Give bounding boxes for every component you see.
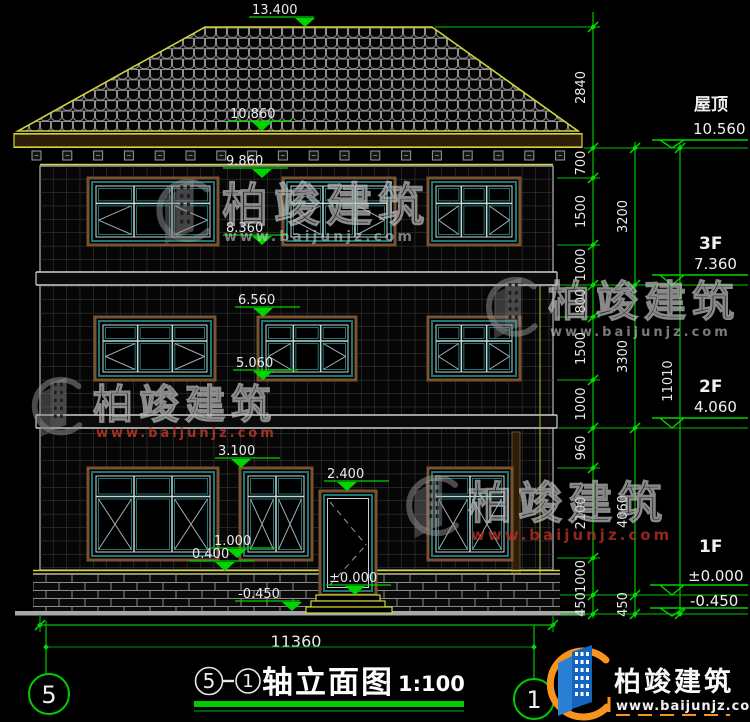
dim-value: 1500 [574,195,589,228]
ground-line [15,611,585,616]
elevation-value: 3.100 [218,444,255,459]
brand-name: 柏竣建筑 [614,666,734,698]
watermark-brand: 柏竣建筑 [548,277,740,326]
dim-value: 3200 [616,200,631,233]
title-scale: 1:100 [398,672,465,696]
f2-label: 2F [699,377,722,397]
f1-zero-level: ±0.000 [688,567,744,585]
axis-bubble-left-number: 5 [41,681,56,709]
dim-value: 450 [616,592,631,617]
eave-fascia [14,133,582,148]
window [428,178,520,245]
dim-value: 700 [574,151,589,176]
dim-value: 3300 [616,340,631,373]
f3-level: 7.360 [694,255,737,273]
f2-level: 4.060 [694,398,737,416]
dim-value: 11010 [661,360,676,401]
elevation-value: ±0.000 [329,571,377,586]
title-text: 轴立面图 [262,665,394,701]
watermark-url: www.baijunjz.com [96,426,277,441]
bottom-dimension-value: 11360 [271,632,322,651]
elevation-drawing: 2840700150010008001500100096021001000450… [0,0,750,722]
dim-value: 960 [574,436,589,461]
elevation-value: 9.860 [226,154,263,169]
elevation-value: 0.400 [192,547,229,562]
roof-label: 屋顶 [694,95,728,115]
axis-bubble-right-number: 1 [526,686,541,714]
dim-value: 450 [574,592,589,617]
window [95,317,215,380]
elevation-value: 10.860 [230,107,276,122]
elevation-value: 2.400 [327,467,364,482]
watermark-url: www.baijunjz.com [224,229,415,245]
elevation-value: 13.400 [252,3,298,18]
dim-value: 2840 [574,71,589,104]
dim-value: 1000 [574,560,589,593]
title-underline [194,701,464,707]
logo-building-front [558,656,572,716]
watermark-brand: 柏竣建筑 [468,478,668,529]
title-axis-to: 1 [242,671,253,692]
elevation-value: 5.060 [236,356,273,371]
roof-level: 10.560 [693,120,746,138]
elevation-value: -0.450 [238,587,280,602]
f1-label: 1F [699,537,722,557]
f3-label: 3F [699,234,722,254]
watermark-url: www.baijunjz.com [471,526,672,544]
brand-url: www.baijunjz.com [616,699,750,714]
entry-steps [306,595,392,613]
watermark-brand: 柏竣建筑 [93,382,277,428]
dim-value: 1000 [574,387,589,420]
title-axis-from: 5 [203,669,216,693]
title-underline-thin [194,710,464,712]
elevation-value: 6.560 [238,293,275,308]
watermark-url: www.baijunjz.com [550,325,731,340]
floor-slab-3f [36,272,557,285]
watermark-brand: 柏竣建筑 [222,178,430,232]
